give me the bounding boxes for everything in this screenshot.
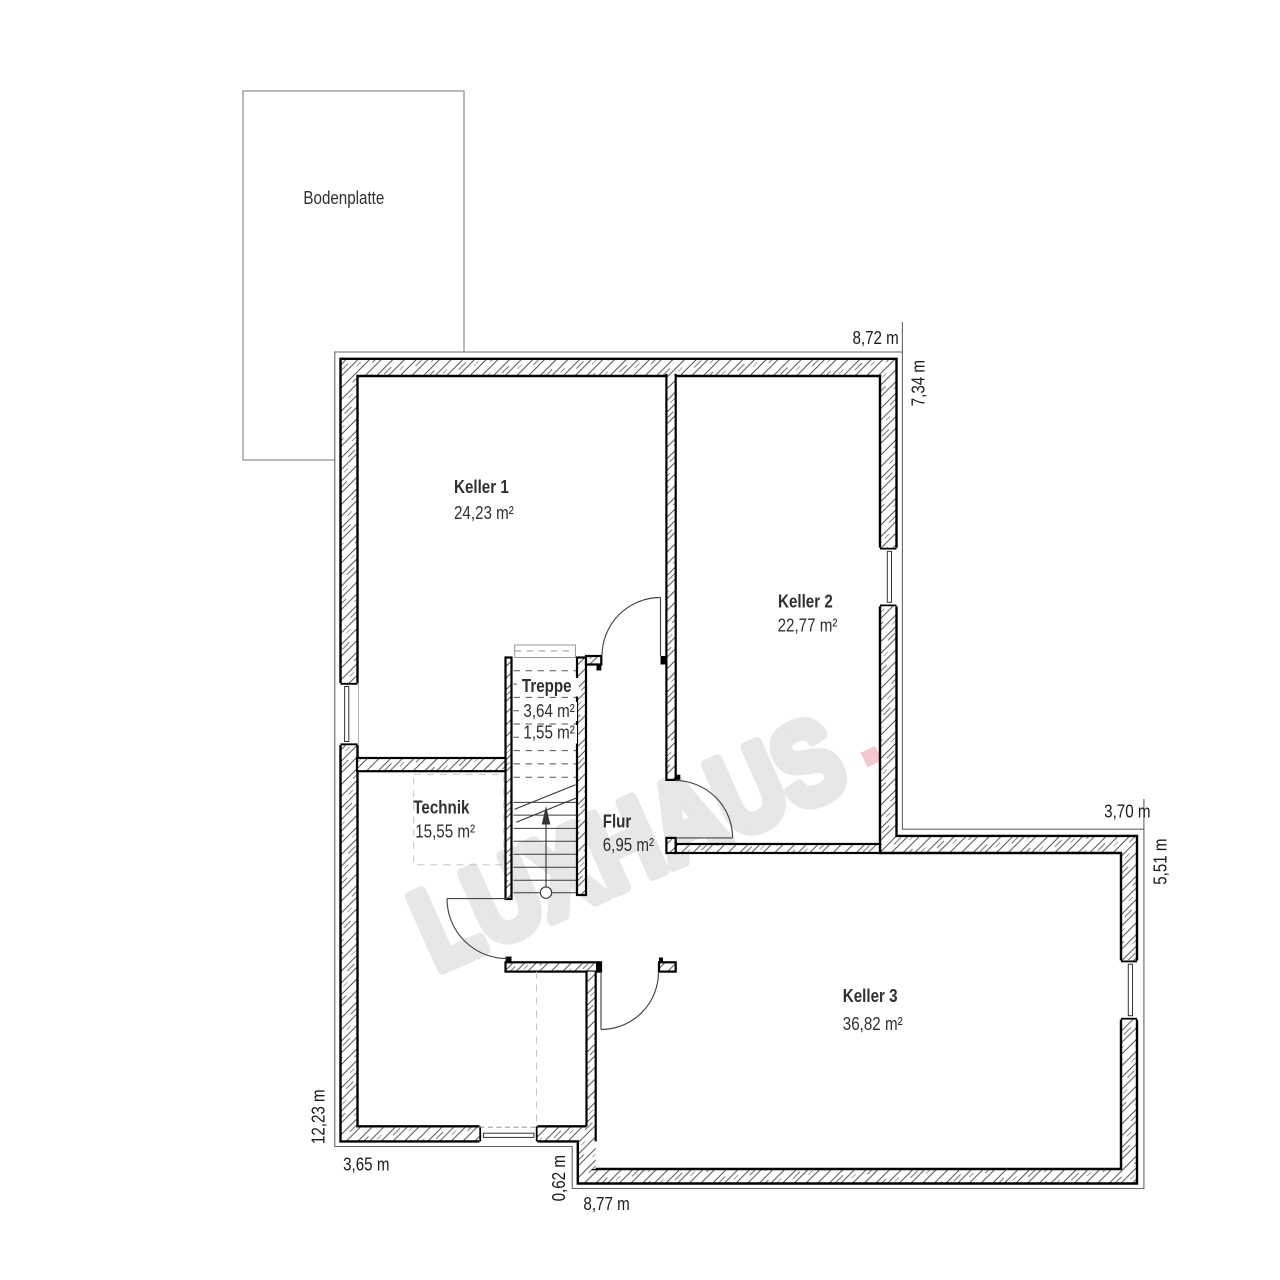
svg-text:Flur: Flur xyxy=(603,811,632,832)
svg-text:3,70 m: 3,70 m xyxy=(1104,801,1150,822)
svg-text:22,77 m²: 22,77 m² xyxy=(778,615,838,636)
svg-text:1,55 m²: 1,55 m² xyxy=(523,722,575,743)
svg-text:3,64 m²: 3,64 m² xyxy=(523,700,575,721)
svg-text:12,23 m: 12,23 m xyxy=(308,1089,329,1144)
svg-text:24,23 m²: 24,23 m² xyxy=(454,503,514,524)
svg-text:8,77 m: 8,77 m xyxy=(583,1194,629,1215)
svg-text:7,34 m: 7,34 m xyxy=(908,360,929,406)
svg-text:5,51 m: 5,51 m xyxy=(1150,838,1171,884)
svg-text:Keller 1: Keller 1 xyxy=(454,477,509,498)
svg-text:15,55 m²: 15,55 m² xyxy=(415,821,475,842)
svg-text:3,65 m: 3,65 m xyxy=(343,1154,389,1175)
svg-text:0,62 m: 0,62 m xyxy=(549,1155,570,1201)
svg-text:Keller 2: Keller 2 xyxy=(778,591,833,612)
svg-text:Bodenplatte: Bodenplatte xyxy=(303,188,384,209)
svg-text:6,95 m²: 6,95 m² xyxy=(603,835,655,856)
svg-text:8,72 m: 8,72 m xyxy=(852,328,898,349)
svg-text:36,82 m²: 36,82 m² xyxy=(843,1013,903,1034)
svg-text:Technik: Technik xyxy=(413,797,470,818)
svg-text:Treppe: Treppe xyxy=(522,676,572,697)
svg-text:Keller 3: Keller 3 xyxy=(843,986,898,1007)
